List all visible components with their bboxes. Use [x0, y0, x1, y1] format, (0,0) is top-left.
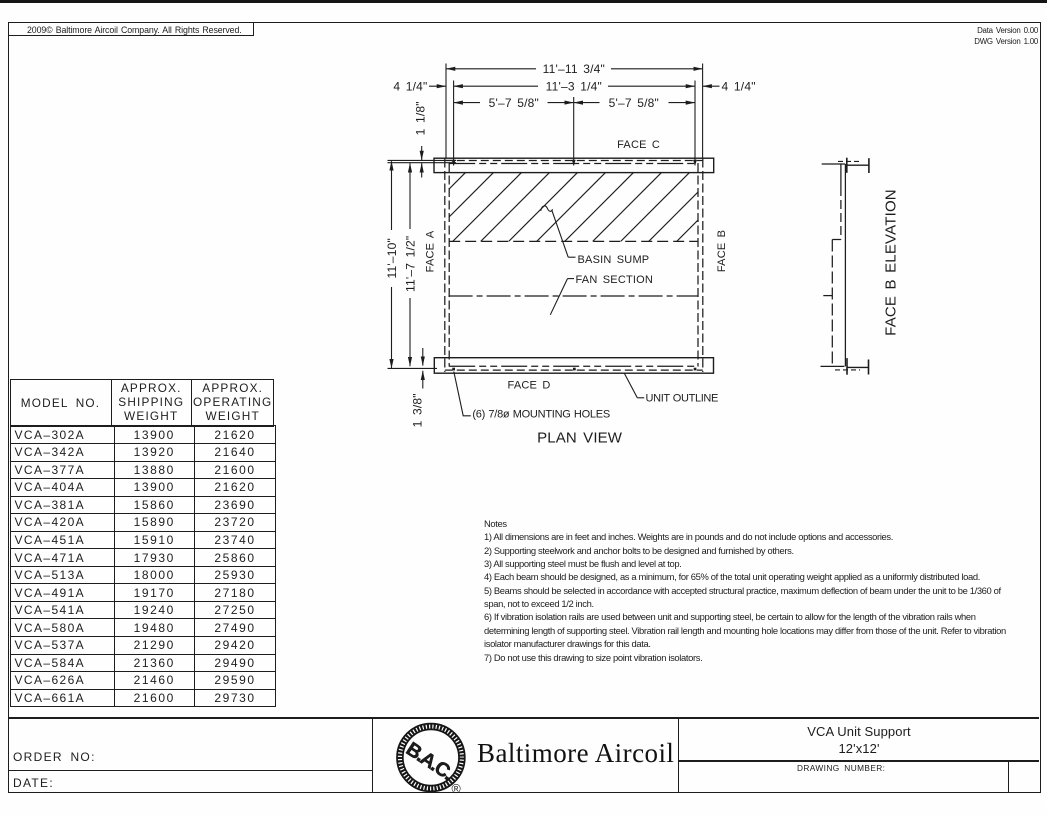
svg-text:UNIT OUTLINE: UNIT OUTLINE: [646, 393, 719, 405]
svg-text:5'–7 5/8": 5'–7 5/8": [609, 96, 659, 110]
svg-text:4 1/4": 4 1/4": [722, 79, 756, 93]
svg-text:(6) 7/8ø MOUNTING HOLES: (6) 7/8ø MOUNTING HOLES: [472, 409, 610, 421]
svg-text:1 1/8": 1 1/8": [414, 101, 428, 135]
svg-text:FACE D: FACE D: [508, 379, 551, 391]
svg-text:11'–7 1/2": 11'–7 1/2": [404, 236, 418, 292]
svg-text:FACE B: FACE B: [716, 230, 728, 272]
svg-text:FACE A: FACE A: [425, 230, 437, 272]
svg-text:11'–3 1/4": 11'–3 1/4": [546, 79, 602, 93]
svg-text:11'–10": 11'–10": [385, 238, 399, 278]
svg-text:FAN SECTION: FAN SECTION: [576, 274, 654, 286]
svg-text:1 3/8": 1 3/8": [411, 393, 425, 427]
svg-text:FACE C: FACE C: [617, 139, 660, 151]
svg-text:PLAN VIEW: PLAN VIEW: [537, 430, 623, 447]
svg-text:FACE B ELEVATION: FACE B ELEVATION: [883, 189, 900, 336]
svg-text:®: ®: [452, 782, 462, 796]
svg-text:5'–7 5/8": 5'–7 5/8": [489, 96, 539, 110]
svg-text:4 1/4": 4 1/4": [393, 79, 427, 93]
svg-text:11'–11 3/4": 11'–11 3/4": [543, 62, 605, 76]
svg-text:BASIN SUMP: BASIN SUMP: [578, 254, 650, 266]
